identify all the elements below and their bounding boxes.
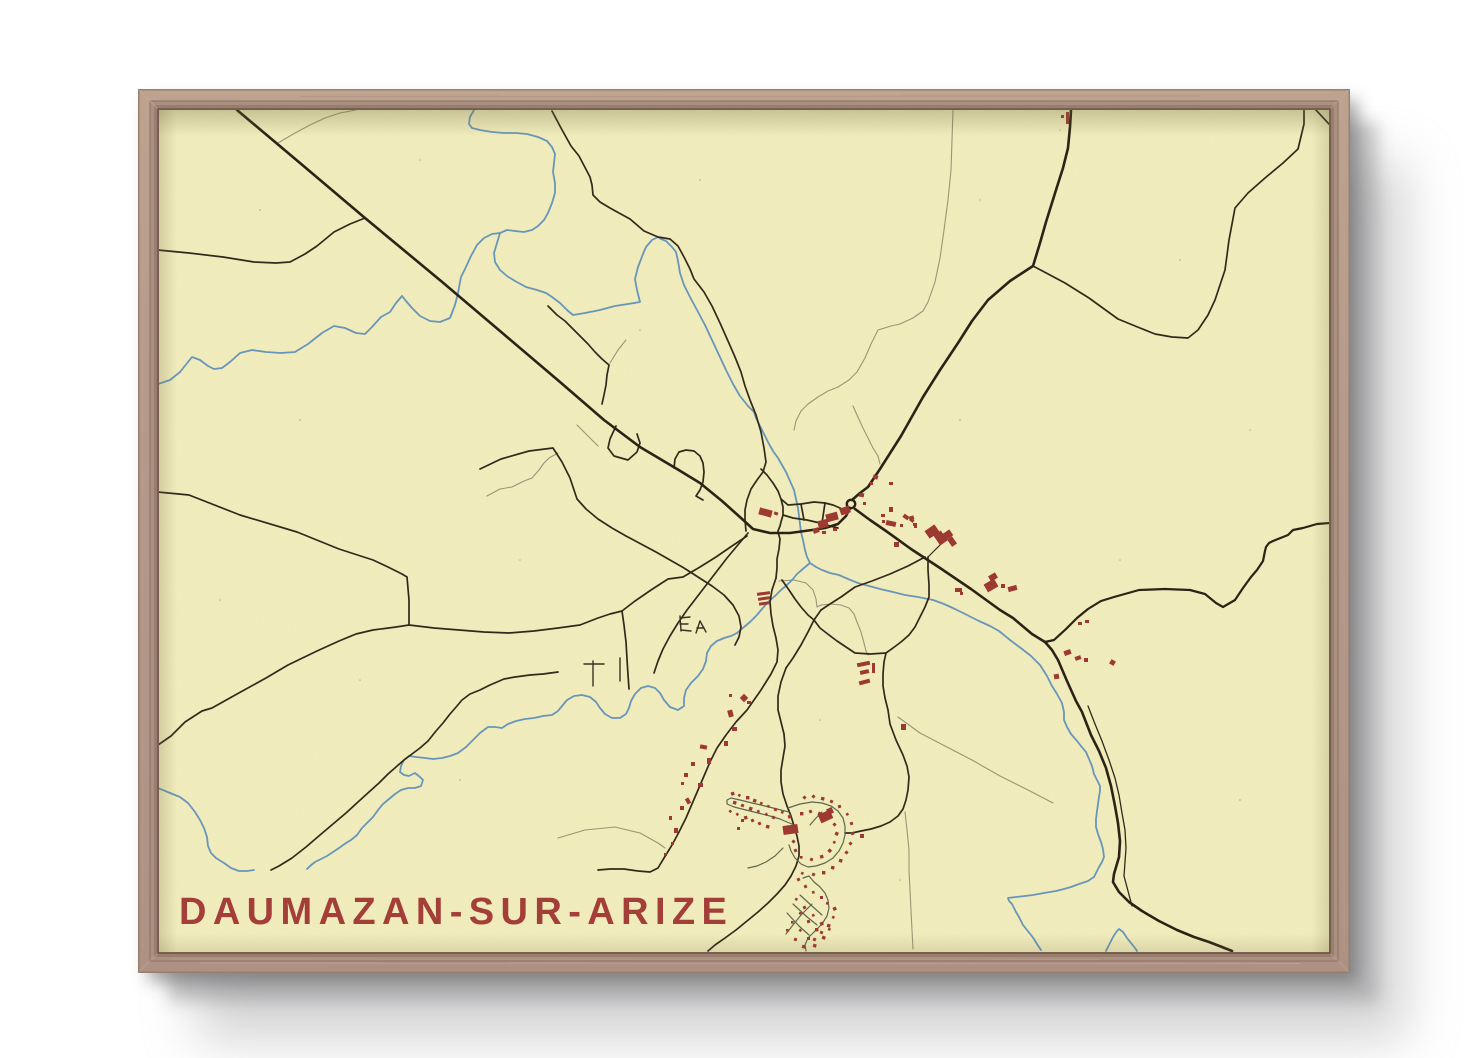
- svg-text:DAUMAZAN-SUR-ARIZE: DAUMAZAN-SUR-ARIZE: [179, 891, 733, 933]
